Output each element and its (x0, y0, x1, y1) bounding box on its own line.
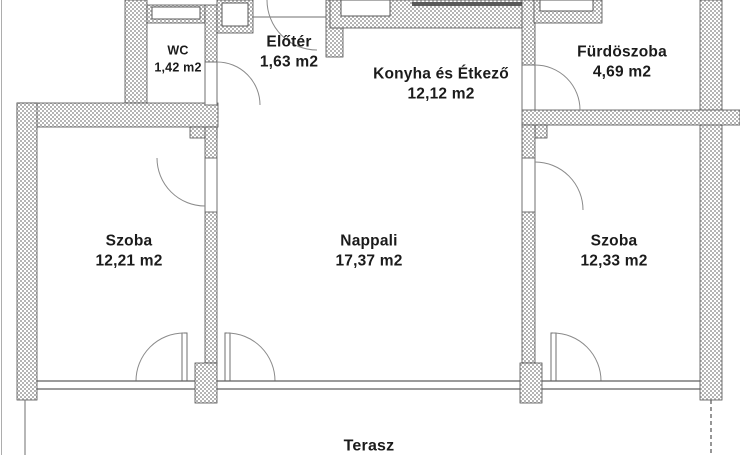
room-label-nappali: Nappali 17,37 m2 (335, 232, 402, 273)
room-label-furdoszoba: Fürdöszoba 4,69 m2 (577, 43, 667, 84)
room-name: Szoba (95, 232, 162, 252)
pillar-right (520, 363, 542, 403)
door-arc-furdo (535, 65, 580, 110)
door-leaf-szoba-right (522, 158, 535, 212)
wall-konyha-furdo (522, 0, 535, 65)
window-wc (152, 7, 200, 19)
window-furdo (540, 0, 593, 11)
wall-furdo-bottom (522, 110, 740, 125)
door-leaf-terasz-nappali (225, 333, 230, 381)
wall-topleft-vertical (125, 0, 147, 103)
door-leaf-terasz-left (182, 333, 187, 381)
room-area: 12,12 m2 (373, 85, 509, 105)
window-elotér (222, 3, 248, 26)
door-leaf-wc (205, 62, 217, 105)
room-area: 12,33 m2 (580, 252, 647, 272)
door-arc-terasz-nappali (227, 333, 275, 381)
room-area: 1,63 m2 (260, 53, 318, 73)
door-arc-szoba-left (157, 158, 205, 206)
window-konyha (341, 0, 390, 16)
room-area: 12,21 m2 (95, 252, 162, 272)
wall-szobal-lower (205, 212, 217, 363)
floor-plan-page: WC 1,42 m2 Előtér 1,63 m2 Konyha és Étke… (0, 0, 740, 455)
door-arc-terasz-right (553, 333, 601, 381)
room-name: Konyha és Étkező (373, 65, 509, 85)
room-label-terasz: Terasz (344, 435, 395, 455)
pillar-left (195, 363, 217, 403)
wall-szobal-upper (205, 127, 217, 158)
wall-left-band (17, 103, 218, 127)
room-name: WC (154, 43, 201, 60)
room-name: Terasz (344, 435, 395, 455)
door-arc-terasz-left (136, 333, 184, 381)
wall-left-outer (17, 103, 37, 400)
door-leaf-furdo (522, 65, 535, 110)
window-sill-dark (412, 2, 523, 6)
room-name: Előtér (260, 33, 318, 53)
room-name: Fürdöszoba (577, 43, 667, 63)
room-label-szoba-right: Szoba 12,33 m2 (580, 232, 647, 273)
wall-right-outer (700, 0, 722, 400)
wall-wc-right (205, 5, 217, 62)
room-name: Nappali (335, 232, 402, 252)
door-arc-szoba-right (535, 162, 583, 210)
door-leaf-terasz-right (551, 333, 556, 381)
wall-notch-right (535, 125, 547, 138)
room-area: 4,69 m2 (577, 63, 667, 83)
room-label-konyha: Konyha és Étkező 12,12 m2 (373, 65, 509, 106)
room-area: 1,42 m2 (154, 59, 201, 76)
room-name: Szoba (580, 232, 647, 252)
room-label-elotér: Előtér 1,63 m2 (260, 33, 318, 74)
room-label-wc: WC 1,42 m2 (154, 43, 201, 76)
door-arc-wc (217, 62, 260, 105)
room-area: 17,37 m2 (335, 252, 402, 272)
wall-szobar-upper (522, 125, 535, 158)
room-label-szoba-left: Szoba 12,21 m2 (95, 232, 162, 273)
door-leaf-szoba-left (205, 158, 217, 212)
wall-szobar-lower (522, 212, 535, 363)
